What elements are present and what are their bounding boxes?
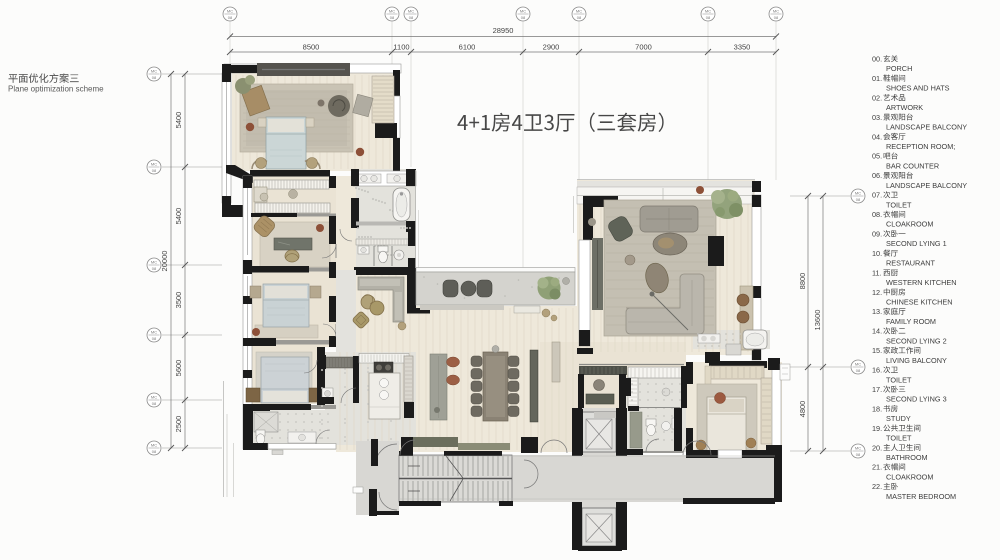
svg-text:08: 08 [152,266,157,271]
svg-text:03.: 03. [872,113,882,122]
svg-text:SHOES AND HATS: SHOES AND HATS [886,84,950,93]
svg-text:MC: MC [576,9,582,14]
svg-text:06.: 06. [872,171,882,180]
svg-text:6100: 6100 [459,43,476,52]
svg-text:08: 08 [856,368,861,373]
svg-text:CLOAKROOM: CLOAKROOM [886,220,933,229]
svg-text:SECOND LYING 1: SECOND LYING 1 [886,239,947,248]
svg-text:08: 08 [152,401,157,406]
svg-text:RESTAURANT: RESTAURANT [886,259,935,268]
svg-text:14.: 14. [872,327,882,336]
svg-text:TOILET: TOILET [886,434,912,443]
svg-text:2900: 2900 [543,43,560,52]
svg-text:08: 08 [152,449,157,454]
svg-text:MC: MC [520,9,526,14]
svg-text:11.: 11. [872,268,882,277]
svg-text:08: 08 [152,168,157,173]
svg-text:5400: 5400 [174,208,183,225]
svg-text:Plane optimization scheme: Plane optimization scheme [8,85,104,94]
svg-text:15.: 15. [872,346,882,355]
svg-text:02.: 02. [872,93,882,102]
svg-text:LANDSCAPE BALCONY: LANDSCAPE BALCONY [886,123,967,132]
svg-text:08.: 08. [872,210,882,219]
svg-text:01.: 01. [872,74,882,83]
svg-text:08: 08 [409,15,414,20]
svg-text:7000: 7000 [635,43,652,52]
svg-text:18.: 18. [872,404,882,413]
svg-text:LIVING BALCONY: LIVING BALCONY [886,356,947,365]
svg-text:08: 08 [856,197,861,202]
svg-text:28950: 28950 [493,26,514,35]
svg-text:CHINESE KITCHEN: CHINESE KITCHEN [886,298,953,307]
svg-text:CLOAKROOM: CLOAKROOM [886,472,933,481]
svg-text:SECOND LYING 3: SECOND LYING 3 [886,395,947,404]
svg-text:1100: 1100 [393,43,409,52]
svg-text:08: 08 [152,336,157,341]
svg-text:20.: 20. [872,443,882,452]
svg-text:21.: 21. [872,463,882,472]
svg-text:LANDSCAPE BALCONY: LANDSCAPE BALCONY [886,181,967,190]
svg-text:13.: 13. [872,307,882,316]
svg-text:08: 08 [152,75,157,80]
svg-text:FAMILY ROOM: FAMILY ROOM [886,317,936,326]
svg-text:08: 08 [521,15,526,20]
svg-text:08: 08 [577,15,582,20]
svg-text:MC: MC [855,446,861,451]
svg-text:04.: 04. [872,132,882,141]
svg-text:MC: MC [227,9,233,14]
svg-text:2500: 2500 [174,416,183,433]
svg-text:20000: 20000 [160,251,169,272]
svg-text:16.: 16. [872,366,882,375]
svg-text:MC: MC [773,9,779,14]
svg-text:SECOND LYING 2: SECOND LYING 2 [886,336,947,345]
svg-text:5600: 5600 [174,360,183,377]
svg-text:BAR COUNTER: BAR COUNTER [886,161,939,170]
svg-text:12.: 12. [872,288,882,297]
svg-text:MC: MC [408,9,414,14]
svg-text:8800: 8800 [798,273,807,290]
svg-text:08: 08 [228,15,233,20]
svg-text:MC: MC [855,191,861,196]
svg-text:TOILET: TOILET [886,200,912,209]
svg-text:05.: 05. [872,152,882,161]
svg-text:MC: MC [151,260,157,265]
svg-text:MC: MC [151,69,157,74]
svg-text:00.: 00. [872,55,882,64]
svg-text:4800: 4800 [798,401,807,418]
svg-text:10.: 10. [872,249,882,258]
svg-text:3350: 3350 [734,43,751,52]
svg-text:08: 08 [706,15,711,20]
svg-text:09.: 09. [872,229,882,238]
svg-text:MC: MC [151,443,157,448]
svg-text:PORCH: PORCH [886,64,912,73]
svg-text:5400: 5400 [174,112,183,129]
svg-text:MC: MC [389,9,395,14]
svg-text:MC: MC [151,395,157,400]
svg-text:WESTERN KITCHEN: WESTERN KITCHEN [886,278,957,287]
svg-text:3500: 3500 [174,292,183,309]
svg-text:MC: MC [855,362,861,367]
svg-text:08: 08 [390,15,395,20]
svg-text:22.: 22. [872,482,882,491]
svg-text:19.: 19. [872,424,882,433]
svg-text:BATHROOM: BATHROOM [886,453,928,462]
svg-text:STUDY: STUDY [886,414,911,423]
svg-text:07.: 07. [872,191,882,200]
svg-text:08: 08 [774,15,779,20]
svg-text:MC: MC [151,162,157,167]
svg-text:MASTER BEDROOM: MASTER BEDROOM [886,492,956,501]
svg-text:8500: 8500 [303,43,320,52]
svg-text:RECEPTION ROOM;: RECEPTION ROOM; [886,142,955,151]
svg-text:08: 08 [856,452,861,457]
svg-text:ARTWORK: ARTWORK [886,103,923,112]
svg-text:17.: 17. [872,385,882,394]
svg-text:TOILET: TOILET [886,375,912,384]
svg-text:MC: MC [151,330,157,335]
svg-text:MC: MC [705,9,711,14]
svg-text:13600: 13600 [813,310,822,331]
